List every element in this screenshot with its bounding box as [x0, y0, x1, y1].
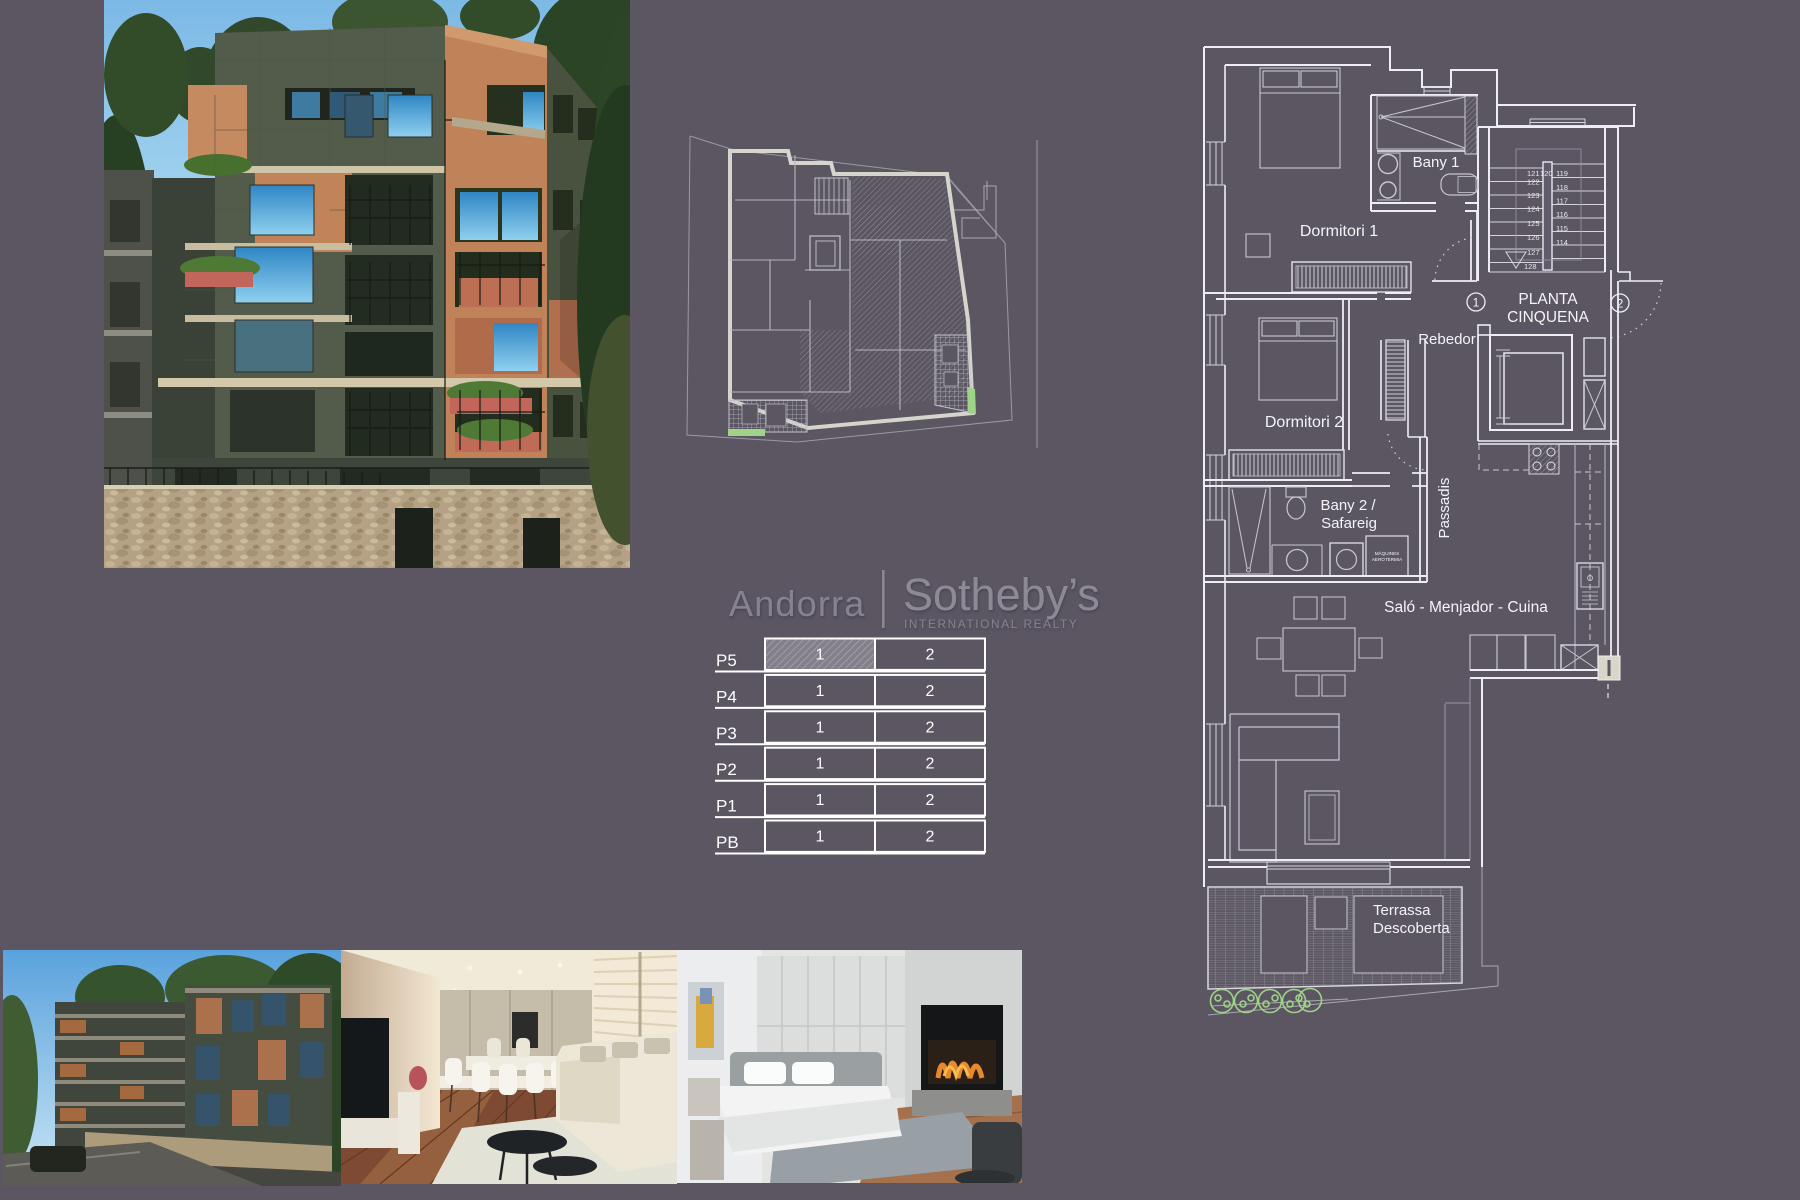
svg-text:Andorra: Andorra — [729, 583, 865, 624]
svg-text:1: 1 — [816, 792, 825, 809]
svg-text:2: 2 — [926, 683, 935, 700]
svg-text:2: 2 — [926, 647, 935, 664]
svg-text:AEROTÈRMIA: AEROTÈRMIA — [1372, 556, 1403, 562]
svg-text:PB: PB — [716, 833, 739, 852]
svg-text:123: 123 — [1527, 191, 1540, 200]
svg-text:P4: P4 — [716, 687, 737, 706]
svg-text:Descoberta: Descoberta — [1373, 920, 1450, 937]
svg-text:P1: P1 — [716, 797, 737, 816]
svg-text:Bany 2 /: Bany 2 / — [1320, 497, 1376, 514]
svg-text:Sotheby’s: Sotheby’s — [903, 569, 1100, 620]
svg-text:2: 2 — [926, 792, 935, 809]
svg-text:Passadis: Passadis — [1436, 478, 1453, 539]
svg-text:INTERNATIONAL REALTY: INTERNATIONAL REALTY — [904, 617, 1078, 631]
svg-text:Rebedor: Rebedor — [1418, 331, 1476, 348]
svg-text:1: 1 — [816, 683, 825, 700]
svg-text:114: 114 — [1556, 238, 1568, 247]
svg-text:Terrassa: Terrassa — [1373, 902, 1431, 919]
svg-text:2: 2 — [926, 829, 935, 846]
svg-text:Dormitori 1: Dormitori 1 — [1300, 223, 1378, 240]
svg-text:118: 118 — [1556, 183, 1568, 192]
svg-text:124: 124 — [1527, 205, 1540, 214]
svg-text:1: 1 — [816, 829, 825, 846]
svg-text:1: 1 — [816, 756, 825, 773]
svg-text:PLANTA: PLANTA — [1518, 291, 1578, 308]
svg-text:119: 119 — [1556, 169, 1568, 178]
svg-text:P2: P2 — [716, 760, 737, 779]
svg-text:117: 117 — [1556, 197, 1568, 206]
svg-text:CINQUENA: CINQUENA — [1507, 309, 1589, 326]
svg-text:127: 127 — [1527, 248, 1540, 257]
svg-text:Saló - Menjador - Cuina: Saló - Menjador - Cuina — [1384, 599, 1548, 616]
svg-text:1: 1 — [816, 647, 825, 664]
svg-text:122: 122 — [1527, 178, 1540, 187]
svg-text:MÀQUINES: MÀQUINES — [1375, 550, 1400, 556]
svg-text:Bany 1: Bany 1 — [1413, 154, 1460, 171]
svg-text:2: 2 — [926, 719, 935, 736]
svg-text:P3: P3 — [716, 724, 737, 743]
svg-text:115: 115 — [1556, 224, 1568, 233]
svg-text:Safareig: Safareig — [1321, 515, 1377, 532]
svg-text:P5: P5 — [716, 651, 737, 670]
svg-text:2: 2 — [926, 756, 935, 773]
svg-text:116: 116 — [1556, 210, 1568, 219]
svg-text:Dormitori 2: Dormitori 2 — [1265, 414, 1343, 431]
svg-text:1: 1 — [1473, 296, 1480, 310]
svg-text:125: 125 — [1527, 219, 1540, 228]
svg-text:120: 120 — [1540, 169, 1553, 178]
svg-text:1: 1 — [816, 719, 825, 736]
svg-text:126: 126 — [1527, 233, 1540, 242]
svg-text:128: 128 — [1524, 262, 1537, 271]
